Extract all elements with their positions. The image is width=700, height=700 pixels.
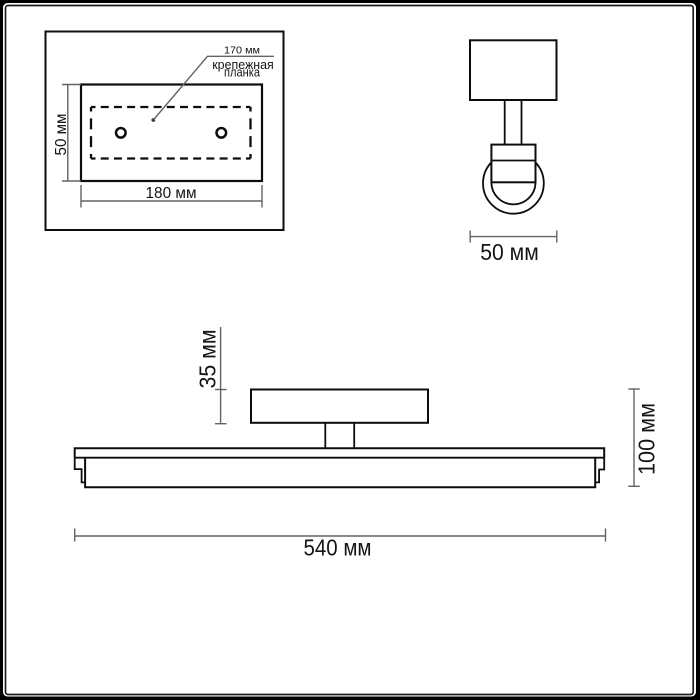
svg-text:180 мм: 180 мм <box>146 185 197 202</box>
svg-text:планка: планка <box>224 66 260 80</box>
svg-text:170 мм: 170 мм <box>224 44 260 56</box>
svg-text:540 мм: 540 мм <box>304 535 372 561</box>
svg-text:50 мм: 50 мм <box>480 239 539 265</box>
svg-text:50 мм: 50 мм <box>53 114 70 156</box>
svg-text:35 мм: 35 мм <box>195 330 221 389</box>
svg-text:100 мм: 100 мм <box>634 403 660 475</box>
